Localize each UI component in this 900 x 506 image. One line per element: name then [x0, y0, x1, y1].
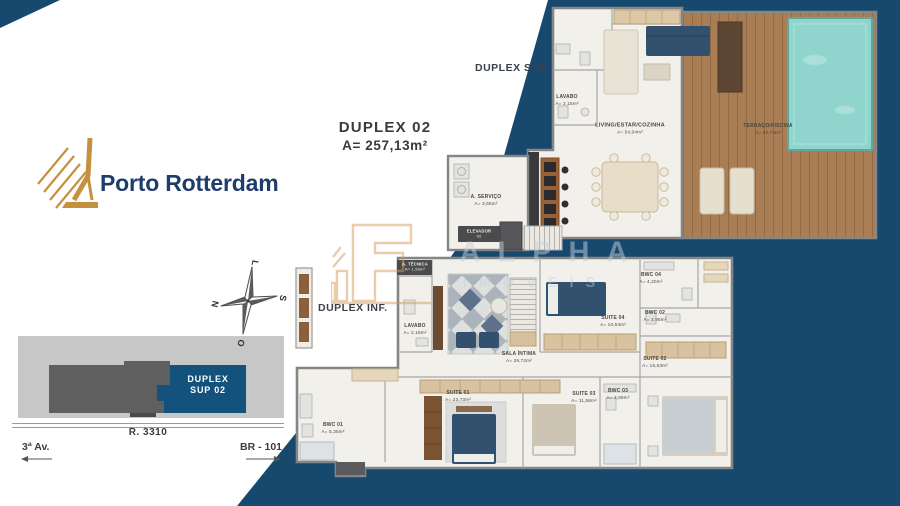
room-label-bwc04: BWC 04A= 4,20m² [639, 272, 662, 284]
coffee-table [644, 64, 670, 80]
outdoor-fireplace [718, 22, 742, 92]
room-label-servico: A. SERVIÇOA= 3,55m² [471, 194, 502, 206]
unit-title-block: DUPLEX 02 A= 257,13m² [339, 119, 432, 153]
site-map [18, 336, 284, 420]
pool [788, 18, 872, 150]
road-right-label: BR - 101 [240, 441, 282, 453]
chaise [604, 30, 638, 94]
room-label-bwc02: BWC 02A= 3,98m² [643, 310, 666, 322]
watermark-text-1: ALPHA [460, 237, 645, 270]
street-line [12, 423, 284, 424]
road-left-label: 3ª Av. [22, 441, 49, 453]
ottoman [479, 332, 499, 348]
brand-logo-icon [32, 134, 98, 212]
room-label-lavabo-sup: LAVABOA= 2,15m² [555, 94, 578, 106]
room-label-sala-intima: SALA ÍNTIMAA= 29,72m² [502, 351, 536, 363]
room-label-elevador: ELEVADOR02 [467, 229, 492, 240]
watermark-text-2: IMÓVEIS [463, 275, 607, 291]
room-label-bwc01: BWC 01A= 5,35m² [321, 422, 344, 434]
marketing-floorplan-page: ALPHA IMÓVEIS Porto Rotterdam DUPLEX 02 … [0, 0, 900, 506]
sofa [646, 26, 710, 56]
tag-duplex-inf: DUPLEX INF. [318, 302, 388, 314]
shower-bwc01 [300, 442, 334, 460]
room-label-suite01: SUITE 01A= 23,73m² [445, 390, 471, 402]
closet-band [420, 380, 560, 393]
compass-north: N [210, 300, 221, 308]
room-label-lavabo-inf: LAVABOA= 2,19m² [403, 323, 426, 335]
ottoman [456, 332, 476, 348]
room-label-suite02: SUITE 02A= 16,53m² [642, 356, 668, 368]
service-shaft [336, 462, 365, 475]
room-label-living: LIVING/ESTAR/COZINHAA= 54,04m² [595, 122, 665, 135]
compass-rose: L S N O [210, 258, 290, 348]
site-unit-line2: SUP 02 [187, 385, 228, 396]
site-unit-line1: DUPLEX [187, 374, 228, 385]
side-table [491, 298, 507, 314]
lounger [700, 168, 724, 214]
dining-set [592, 154, 668, 220]
closet [614, 10, 680, 24]
room-label-terraco: TERRAÇO/PISCINAA= 52,74m² [743, 123, 792, 135]
watermark-logo-icon [331, 213, 435, 305]
building-footprint [49, 365, 170, 413]
brand-name: Porto Rotterdam [100, 170, 278, 197]
room-label-bwc03: BWC 03A= 3,88m² [606, 388, 629, 400]
street-name: R. 3310 [129, 427, 168, 438]
wardrobe-suite04 [544, 334, 636, 350]
room-label-suite04: SUITE 04A= 10,54m² [600, 315, 626, 327]
compass-west: O [235, 339, 246, 348]
tag-duplex-sup: DUPLEX SUP. [475, 62, 549, 74]
compass-east: L [249, 259, 260, 267]
shower-bwc03 [604, 444, 636, 464]
site-unit-label: DUPLEX SUP 02 [187, 374, 228, 397]
lounger [730, 168, 754, 214]
room-label-suite03: SUITE 03A= 11,58m² [571, 391, 597, 403]
room-label-tecnica: A. TÉCNICAA= 1,50m² [402, 262, 428, 273]
unit-area: A= 257,13m² [339, 138, 432, 153]
unit-title: DUPLEX 02 [339, 119, 432, 136]
road-arrows [18, 452, 286, 464]
arrow-left-icon [21, 456, 28, 462]
arrow-right-icon [274, 456, 281, 462]
compass-south: S [277, 294, 288, 302]
